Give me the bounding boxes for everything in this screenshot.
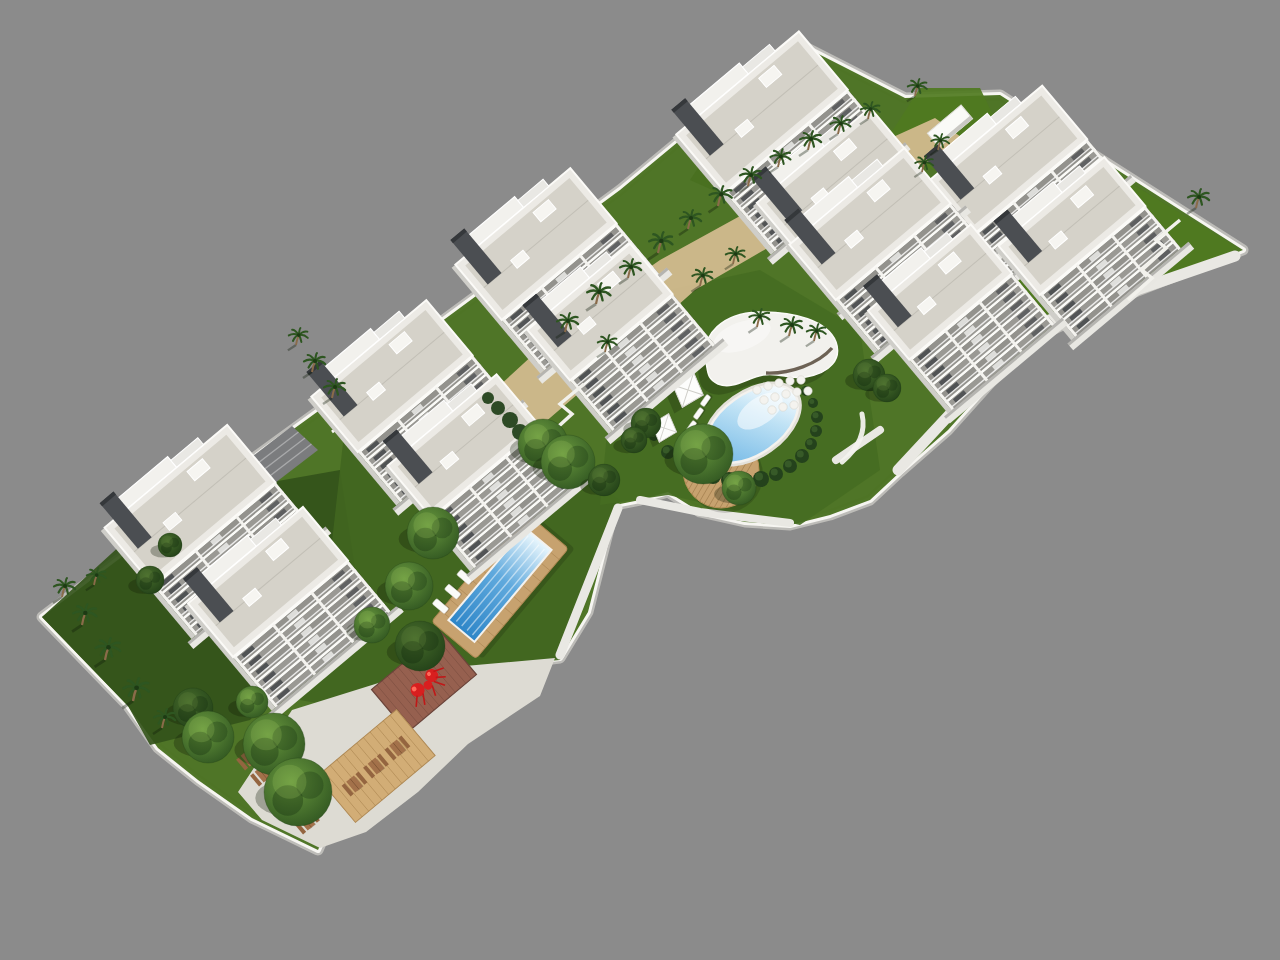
hedge-ball <box>783 459 797 473</box>
stepping-stone <box>764 382 772 390</box>
stepping-stone <box>753 386 761 394</box>
hedge-ball <box>811 411 823 423</box>
stepping-stone <box>771 393 779 401</box>
hedge-ball <box>808 398 818 408</box>
hedge-ball <box>810 425 822 437</box>
stepping-stone <box>779 403 787 411</box>
stepping-stone <box>786 377 794 385</box>
stepping-stone <box>790 401 798 409</box>
stepping-stone <box>793 388 801 396</box>
shrub <box>482 392 494 404</box>
stepping-stone <box>768 406 776 414</box>
stepping-stone <box>760 396 768 404</box>
hedge-ball <box>805 438 817 450</box>
stepping-stone <box>797 376 805 384</box>
hedge-ball <box>795 449 809 463</box>
stepping-stone <box>782 390 790 398</box>
shrub <box>491 401 505 415</box>
hedge-ball <box>769 467 783 481</box>
stepping-stone <box>804 387 812 395</box>
stepping-stone <box>775 379 783 387</box>
architectural-render-page <box>0 0 1280 960</box>
site-plan-render <box>0 0 1280 960</box>
